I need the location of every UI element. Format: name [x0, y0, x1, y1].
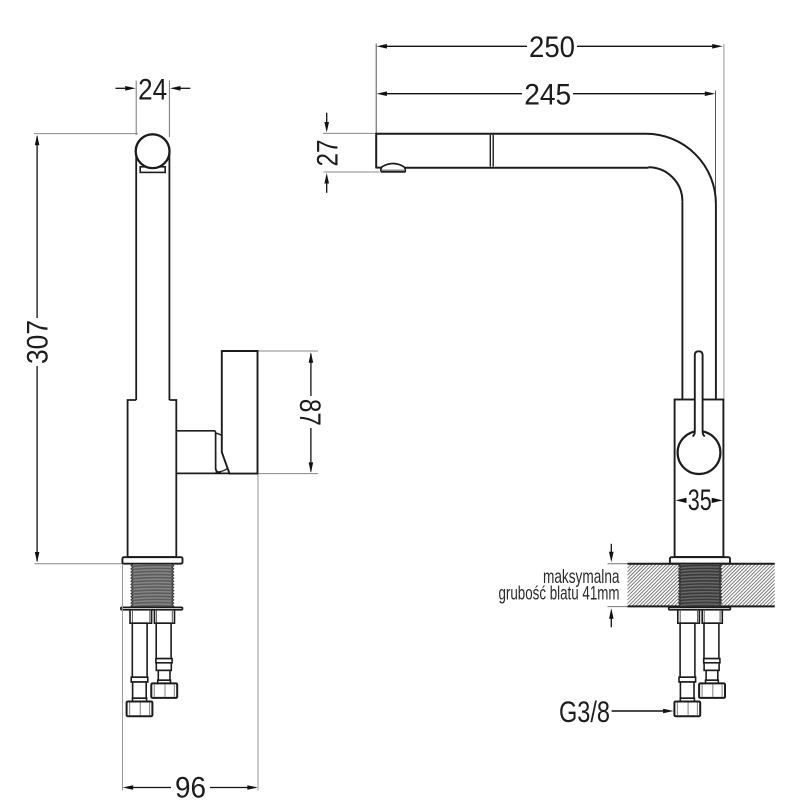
- svg-text:96: 96: [175, 772, 206, 800]
- svg-text:87: 87: [293, 399, 326, 426]
- svg-text:307: 307: [21, 320, 54, 364]
- svg-text:245: 245: [524, 79, 571, 112]
- svg-text:250: 250: [529, 31, 575, 64]
- svg-text:35: 35: [688, 484, 712, 517]
- svg-text:grubość blatu 41mm: grubość blatu 41mm: [499, 582, 620, 604]
- svg-text:G3/8: G3/8: [559, 696, 610, 729]
- svg-text:27: 27: [311, 140, 344, 167]
- svg-text:24: 24: [138, 74, 167, 107]
